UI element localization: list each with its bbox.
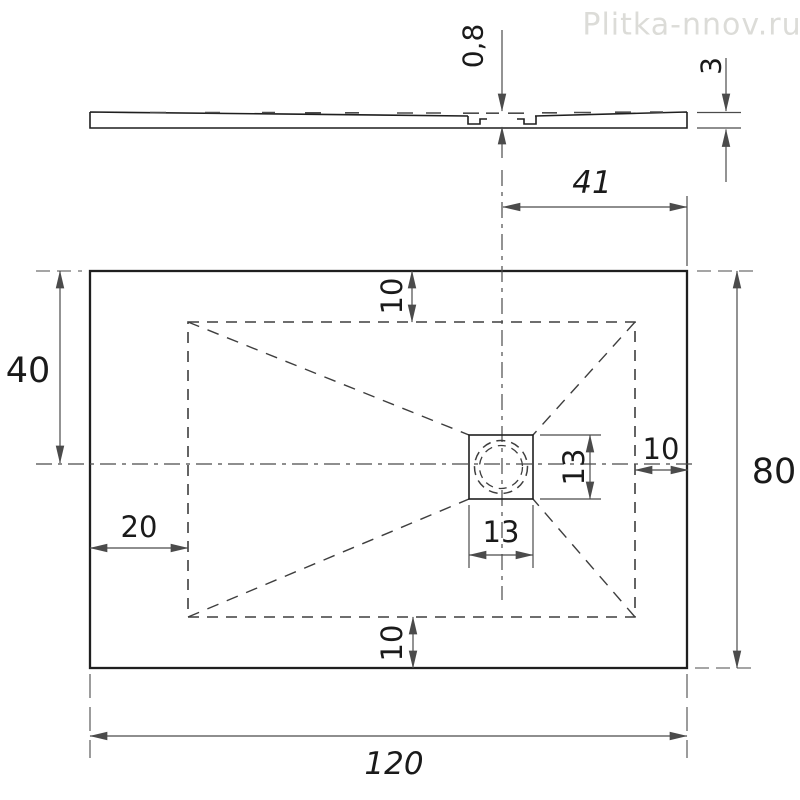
dim-41-label: 41 [572,165,611,201]
dim-edge-thickness-extensions [697,113,741,129]
shower-tray-dimension-drawing: Plitka-nnov.ru 0,8 3 [0,0,800,800]
dim-80-extensions [695,271,757,668]
slope-diagonal-top-left [188,322,469,435]
dim-13-bottom-label: 13 [483,515,520,549]
dim-40-label: 40 [6,351,51,391]
dim-120-label: 120 [364,746,423,782]
dim-edge-thickness: 3 [695,57,742,182]
dim-10-top-label: 10 [375,278,409,315]
dim-20-label: 20 [121,510,158,544]
slope-diagonal-bottom-left [188,499,469,617]
dim-recess-depth: 0,8 [457,24,503,158]
drain [469,435,533,499]
dimension-13-right: 13 [540,435,601,499]
drain-square [469,435,533,499]
profile-drain-recess [468,116,536,124]
dimension-80: 80 [695,271,796,668]
dimension-20: 20 [90,510,188,548]
tray-outline-rect [90,271,687,668]
technical-drawing-page: Plitka-nnov.ru 0,8 3 [0,0,800,800]
dimension-41: 41 [503,165,687,266]
dim-recess-depth-label: 0,8 [457,24,490,69]
slope-diagonal-top-right [533,322,635,435]
dim-13-right-label: 13 [557,449,591,486]
dim-80-label: 80 [752,452,797,492]
drain-cover-outer-circle [475,441,528,494]
dim-10-right-label: 10 [643,432,680,466]
profile-outline [90,112,687,128]
dim-edge-thickness-label: 3 [695,57,728,75]
side-profile-view: 0,8 3 [90,24,741,182]
dimension-10-top: 10 [375,271,412,322]
plan-view [36,170,695,668]
dimension-13-bottom: 13 [469,505,533,568]
drain-cover-inner-circle [480,446,523,489]
dim-10-bottom-label: 10 [375,625,409,662]
dimension-120: 120 [90,674,687,782]
slope-diagonal-bottom-right [533,499,635,617]
dimension-40: 40 [6,271,82,463]
dimension-10-bottom: 10 [375,617,413,668]
watermark-text: Plitka-nnov.ru [582,8,800,43]
